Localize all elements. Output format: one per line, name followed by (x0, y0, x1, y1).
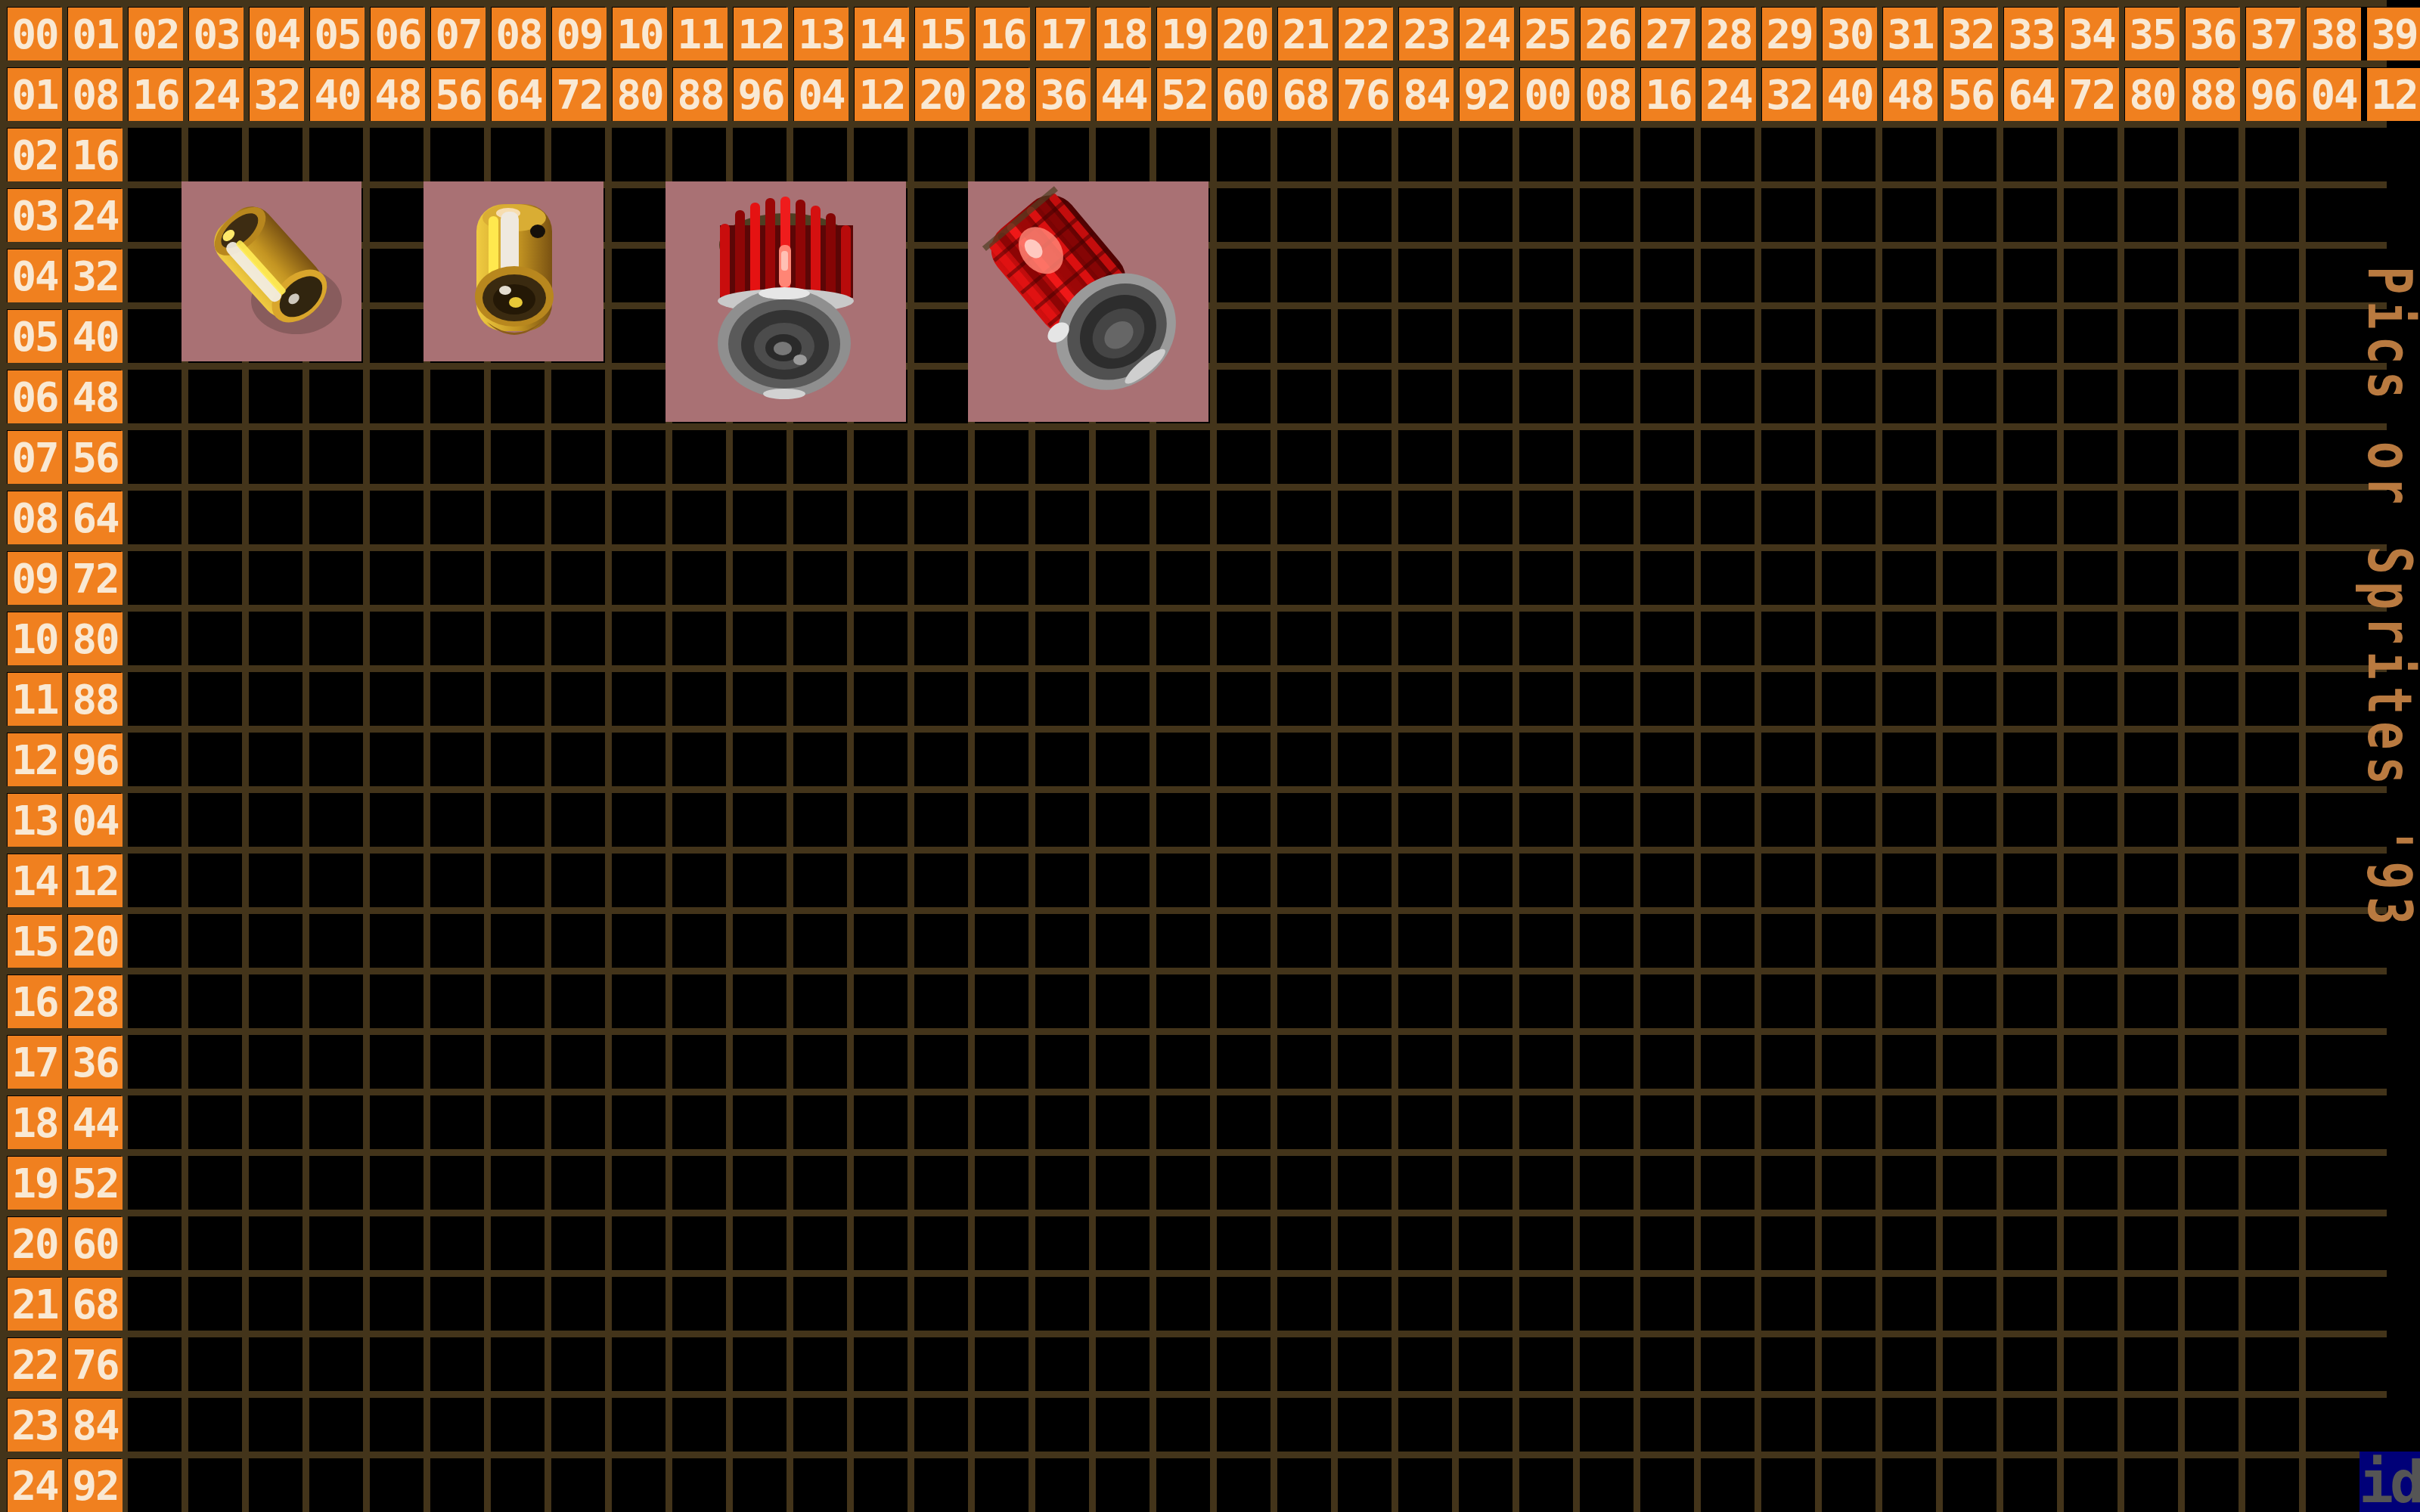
row-offset-cell: 12 (68, 854, 123, 907)
col-offset-cell: 12 (2367, 68, 2420, 121)
col-offset-cell: 01 (8, 68, 62, 121)
col-index-cell: 22 (1339, 8, 1393, 60)
col-offset-cell: 40 (310, 68, 365, 121)
col-offset-cell: 84 (1399, 68, 1454, 121)
row-offset-cell: 24 (68, 189, 123, 242)
row-index-cell: 21 (8, 1278, 62, 1331)
col-offset-cell: 68 (1278, 68, 1333, 121)
row-index-cell: 09 (8, 552, 62, 605)
col-index-cell: 12 (734, 8, 788, 60)
col-index-cell: 04 (250, 8, 304, 60)
row-index-cell: 17 (8, 1036, 62, 1089)
col-index-cell: 16 (976, 8, 1030, 60)
col-index-cell: 00 (8, 8, 62, 60)
col-index-cell: 35 (2125, 8, 2180, 60)
col-index-cell: 34 (2065, 8, 2119, 60)
row-offset-cell: 52 (68, 1157, 123, 1210)
col-index-cell: 32 (1944, 8, 1998, 60)
col-index-cell: 01 (68, 8, 123, 60)
col-offset-cell: 52 (1157, 68, 1212, 121)
col-index-cell: 03 (189, 8, 244, 60)
col-offset-cell: 08 (68, 68, 123, 121)
row-offset-cell: 68 (68, 1278, 123, 1331)
row-index-cell: 05 (8, 310, 62, 363)
col-index-cell: 07 (431, 8, 486, 60)
row-offset-cell: 32 (68, 249, 123, 302)
col-offset-cell: 16 (129, 68, 183, 121)
id-logo-text: id (2359, 1458, 2420, 1507)
sprite-cell-red-shell-angled[interactable] (968, 181, 1208, 422)
row-offset-cell: 72 (68, 552, 123, 605)
row-offset-cell: 40 (68, 310, 123, 363)
col-offset-cell: 24 (189, 68, 244, 121)
col-index-cell: 38 (2307, 8, 2361, 60)
col-index-cell: 33 (2004, 8, 2059, 60)
brass-shell-upright-sprite (423, 181, 603, 361)
row-index-cell: 10 (8, 612, 62, 665)
row-offset-cell: 64 (68, 491, 123, 544)
row-offset-cell: 84 (68, 1399, 123, 1452)
row-index-cell: 06 (8, 370, 62, 423)
col-offset-cell: 96 (2246, 68, 2301, 121)
col-offset-cell: 48 (371, 68, 425, 121)
col-offset-cell: 32 (250, 68, 304, 121)
col-offset-cell: 64 (2004, 68, 2059, 121)
col-offset-cell: 24 (1702, 68, 1756, 121)
col-index-cell: 06 (371, 8, 425, 60)
row-index-cell: 24 (8, 1459, 62, 1512)
col-index-cell: 02 (129, 8, 183, 60)
row-offset-cell: 56 (68, 431, 123, 484)
col-index-cell: 24 (1460, 8, 1514, 60)
col-index-cell: 10 (613, 8, 667, 60)
col-index-cell: 19 (1157, 8, 1212, 60)
col-index-cell: 20 (1218, 8, 1272, 60)
col-index-cell: 30 (1823, 8, 1877, 60)
row-offset-cell: 88 (68, 673, 123, 726)
col-offset-cell: 56 (431, 68, 486, 121)
sprite-cell-red-shell-upright[interactable] (665, 181, 906, 422)
row-index-cell: 11 (8, 673, 62, 726)
col-offset-cell: 56 (1944, 68, 1998, 121)
col-offset-cell: 60 (1218, 68, 1272, 121)
row-offset-cell: 04 (68, 794, 123, 847)
col-offset-cell: 96 (734, 68, 788, 121)
col-offset-cell: 00 (1520, 68, 1575, 121)
row-index-cell: 02 (8, 129, 62, 181)
row-offset-cell: 36 (68, 1036, 123, 1089)
col-offset-cell: 12 (855, 68, 909, 121)
row-index-cell: 12 (8, 733, 62, 786)
sprite-sheet-canvas: 0001020304050607080910111213141516171819… (0, 0, 2420, 1512)
col-index-cell: 15 (915, 8, 970, 60)
col-offset-cell: 20 (915, 68, 970, 121)
col-index-cell: 31 (1883, 8, 1938, 60)
id-software-logo: id (2359, 1452, 2420, 1512)
col-index-cell: 17 (1036, 8, 1091, 60)
row-offset-cell: 28 (68, 975, 123, 1028)
row-index-cell: 03 (8, 189, 62, 242)
col-offset-cell: 36 (1036, 68, 1091, 121)
col-offset-cell: 04 (794, 68, 849, 121)
red-shell-angled-sprite (968, 181, 1208, 422)
col-offset-cell: 72 (552, 68, 607, 121)
red-shell-upright-sprite (665, 181, 906, 422)
col-offset-cell: 32 (1762, 68, 1817, 121)
col-index-cell: 27 (1641, 8, 1696, 60)
row-offset-cell: 80 (68, 612, 123, 665)
col-index-cell: 29 (1762, 8, 1817, 60)
col-offset-cell: 64 (492, 68, 546, 121)
row-offset-cell: 96 (68, 733, 123, 786)
col-offset-cell: 76 (1339, 68, 1393, 121)
col-index-cell: 13 (794, 8, 849, 60)
col-offset-cell: 40 (1823, 68, 1877, 121)
row-index-cell: 22 (8, 1338, 62, 1391)
row-index-cell: 04 (8, 249, 62, 302)
col-index-cell: 21 (1278, 8, 1333, 60)
row-offset-cell: 92 (68, 1459, 123, 1512)
col-index-cell: 39 (2367, 8, 2420, 60)
vertical-title: Pics or Sprites '93 (2349, 266, 2420, 931)
col-offset-cell: 88 (2186, 68, 2240, 121)
brass-shell-angled-sprite (181, 181, 361, 361)
col-offset-cell: 48 (1883, 68, 1938, 121)
col-index-cell: 14 (855, 8, 909, 60)
col-offset-cell: 44 (1097, 68, 1151, 121)
col-index-cell: 25 (1520, 8, 1575, 60)
row-offset-cell: 60 (68, 1217, 123, 1270)
row-index-cell: 16 (8, 975, 62, 1028)
row-offset-cell: 16 (68, 129, 123, 181)
col-index-cell: 05 (310, 8, 365, 60)
row-index-cell: 15 (8, 915, 62, 968)
col-index-cell: 37 (2246, 8, 2301, 60)
col-index-cell: 28 (1702, 8, 1756, 60)
col-offset-cell: 04 (2307, 68, 2361, 121)
row-index-cell: 13 (8, 794, 62, 847)
col-index-cell: 08 (492, 8, 546, 60)
col-offset-cell: 80 (613, 68, 667, 121)
col-index-cell: 36 (2186, 8, 2240, 60)
col-offset-cell: 08 (1581, 68, 1635, 121)
col-index-cell: 09 (552, 8, 607, 60)
row-index-cell: 20 (8, 1217, 62, 1270)
row-offset-cell: 44 (68, 1096, 123, 1149)
sprite-cell-brass-shell-upright[interactable] (423, 181, 603, 361)
row-index-cell: 19 (8, 1157, 62, 1210)
col-offset-cell: 28 (976, 68, 1030, 121)
row-offset-cell: 48 (68, 370, 123, 423)
col-offset-cell: 16 (1641, 68, 1696, 121)
col-index-cell: 26 (1581, 8, 1635, 60)
row-index-cell: 07 (8, 431, 62, 484)
row-index-cell: 08 (8, 491, 62, 544)
row-index-cell: 23 (8, 1399, 62, 1452)
sprite-cell-brass-shell-angled[interactable] (181, 181, 361, 361)
row-offset-cell: 76 (68, 1338, 123, 1391)
col-index-cell: 11 (673, 8, 728, 60)
col-index-cell: 18 (1097, 8, 1151, 60)
col-offset-cell: 80 (2125, 68, 2180, 121)
col-index-cell: 23 (1399, 8, 1454, 60)
col-offset-cell: 72 (2065, 68, 2119, 121)
row-index-cell: 18 (8, 1096, 62, 1149)
col-offset-cell: 92 (1460, 68, 1514, 121)
row-index-cell: 14 (8, 854, 62, 907)
row-offset-cell: 20 (68, 915, 123, 968)
col-offset-cell: 88 (673, 68, 728, 121)
